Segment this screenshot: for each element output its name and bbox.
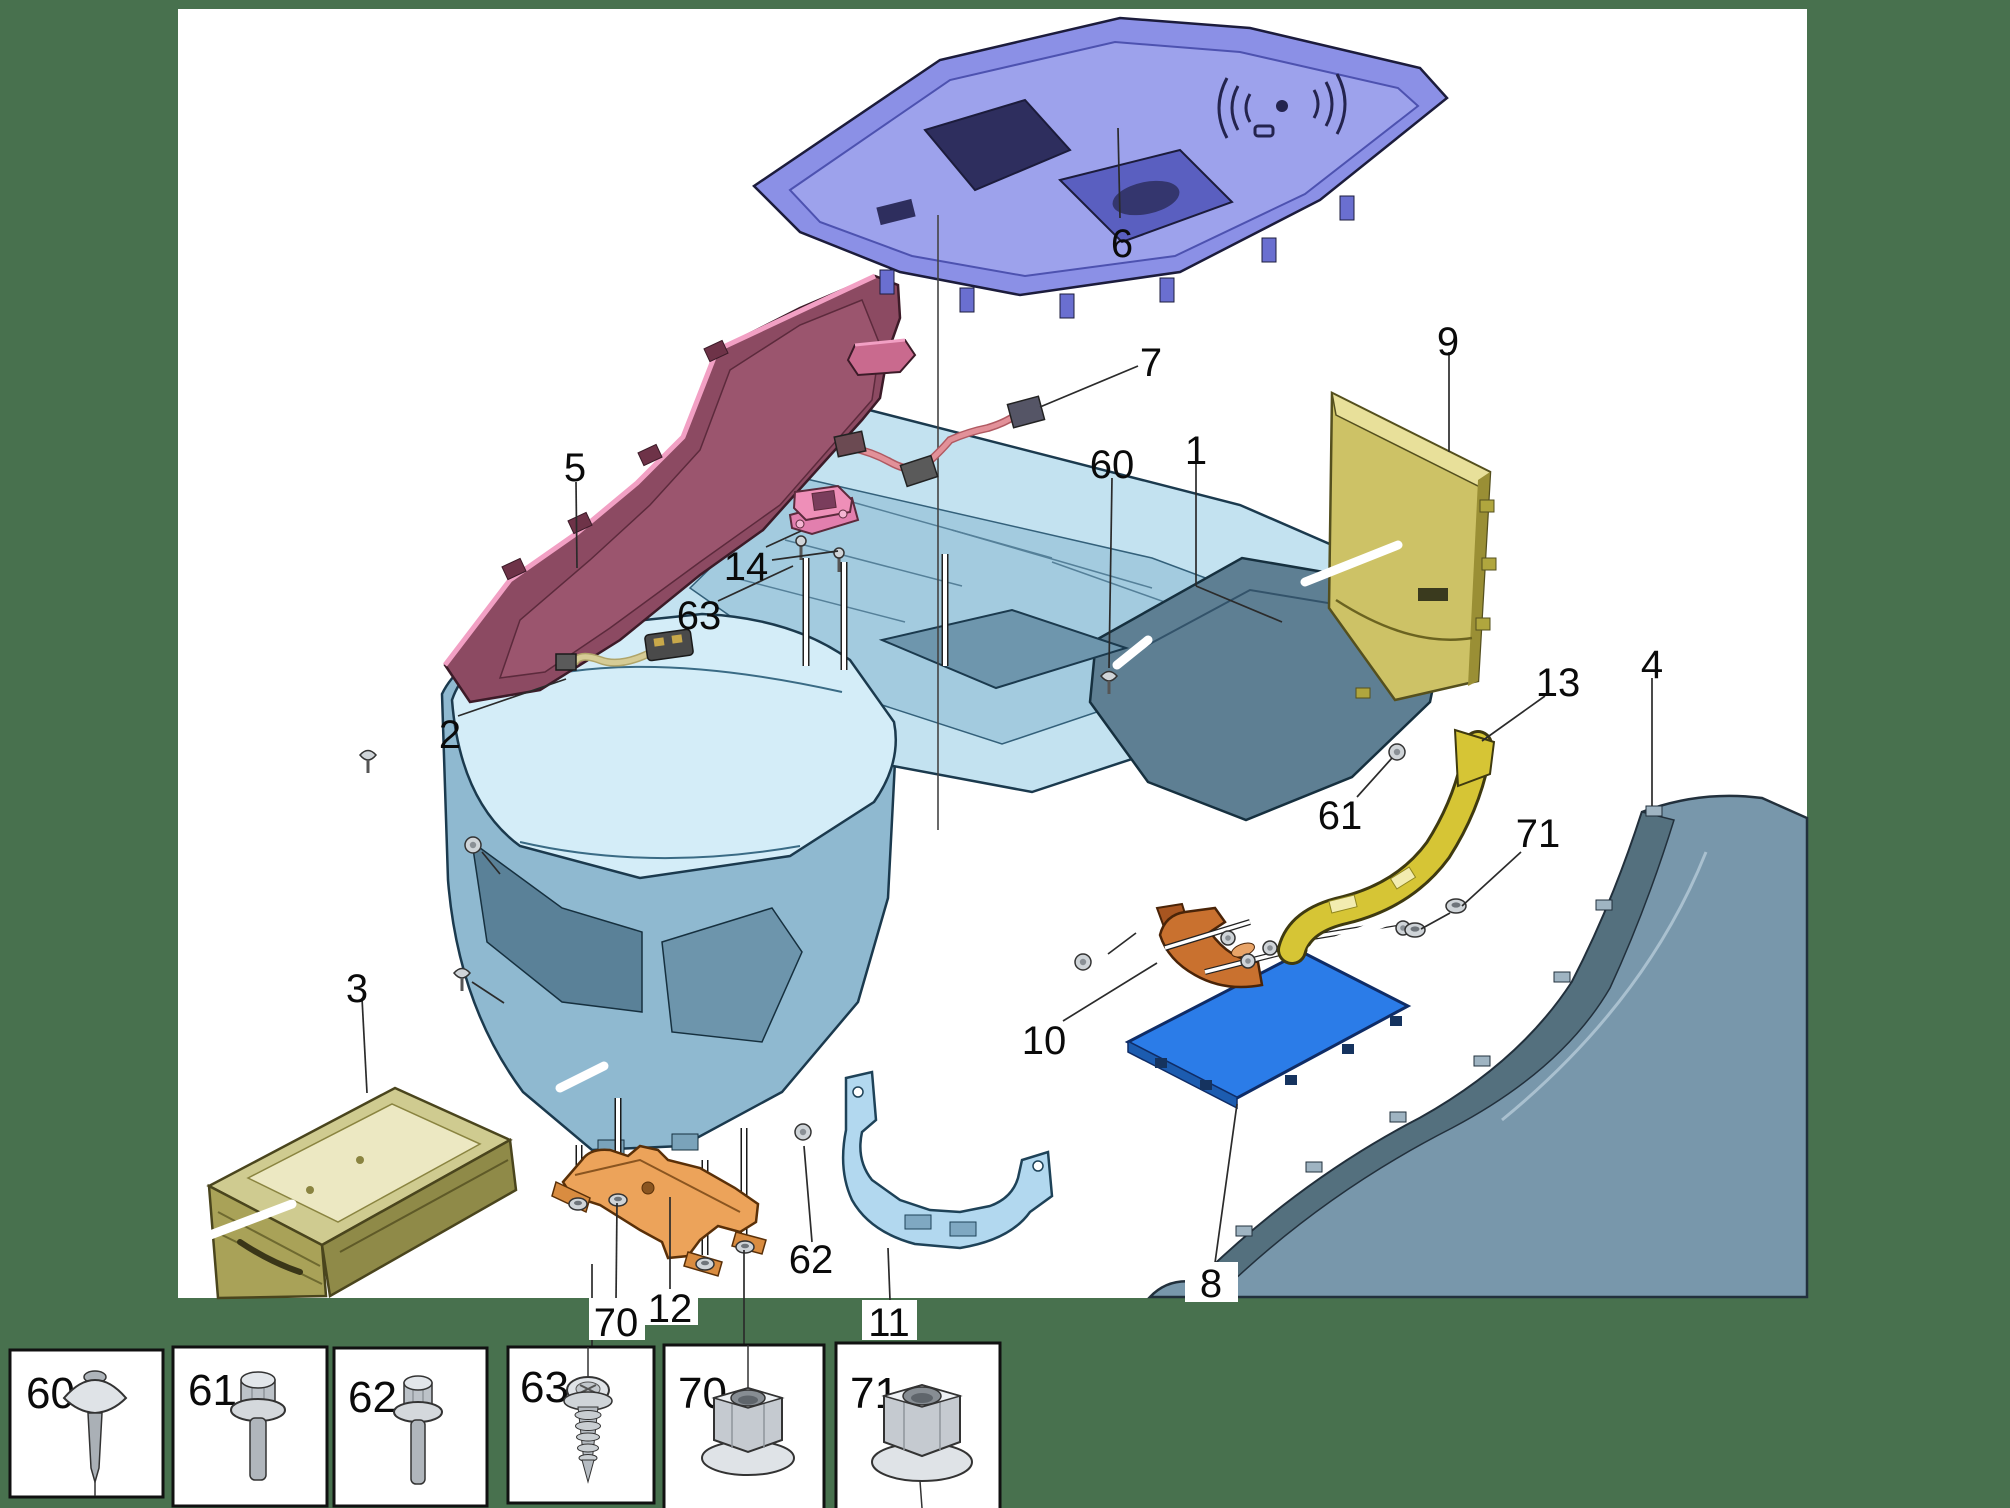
legend-box-62[interactable]: 62 xyxy=(334,1348,487,1506)
callout-60[interactable]: 60 xyxy=(1090,443,1135,487)
callout-3[interactable]: 3 xyxy=(346,967,368,1011)
legend-box-71[interactable]: 71 xyxy=(836,1343,1000,1508)
callout-5[interactable]: 5 xyxy=(564,446,586,490)
callout-63[interactable]: 63 xyxy=(677,594,722,638)
callout-6[interactable]: 6 xyxy=(1111,222,1133,266)
callout-8[interactable]: 8 xyxy=(1200,1262,1222,1306)
callout-1[interactable]: 1 xyxy=(1185,429,1207,473)
callout-12[interactable]: 12 xyxy=(648,1287,693,1331)
exploded-view-diagram: 1 2 3 4 5 6 7 8 9 10 11 12 13 14 60 61 6… xyxy=(0,0,2010,1508)
legend-label-61: 61 xyxy=(188,1366,237,1415)
legend-box-60[interactable]: 60 xyxy=(10,1350,163,1497)
callout-62[interactable]: 62 xyxy=(789,1238,834,1282)
callout-13[interactable]: 13 xyxy=(1536,661,1581,705)
callout-11[interactable]: 11 xyxy=(868,1301,910,1345)
callout-9[interactable]: 9 xyxy=(1437,320,1459,364)
callout-10[interactable]: 10 xyxy=(1022,1019,1067,1063)
callout-14[interactable]: 14 xyxy=(724,545,769,589)
callout-4[interactable]: 4 xyxy=(1641,643,1663,687)
legend-box-70[interactable]: 70 xyxy=(664,1345,824,1508)
legend-label-63: 63 xyxy=(520,1363,569,1412)
legend-box-63[interactable]: 63 xyxy=(508,1347,654,1503)
callout-7[interactable]: 7 xyxy=(1140,341,1162,385)
legend-box-61[interactable]: 61 xyxy=(173,1347,327,1506)
parts-diagram-page: 1 2 3 4 5 6 7 8 9 10 11 12 13 14 60 61 6… xyxy=(0,0,2010,1508)
legend-label-62: 62 xyxy=(348,1373,397,1422)
callout-61[interactable]: 61 xyxy=(1318,794,1363,838)
callout-71[interactable]: 71 xyxy=(1516,812,1561,856)
callout-70[interactable]: 70 xyxy=(594,1301,639,1345)
callout-2[interactable]: 2 xyxy=(439,713,461,757)
